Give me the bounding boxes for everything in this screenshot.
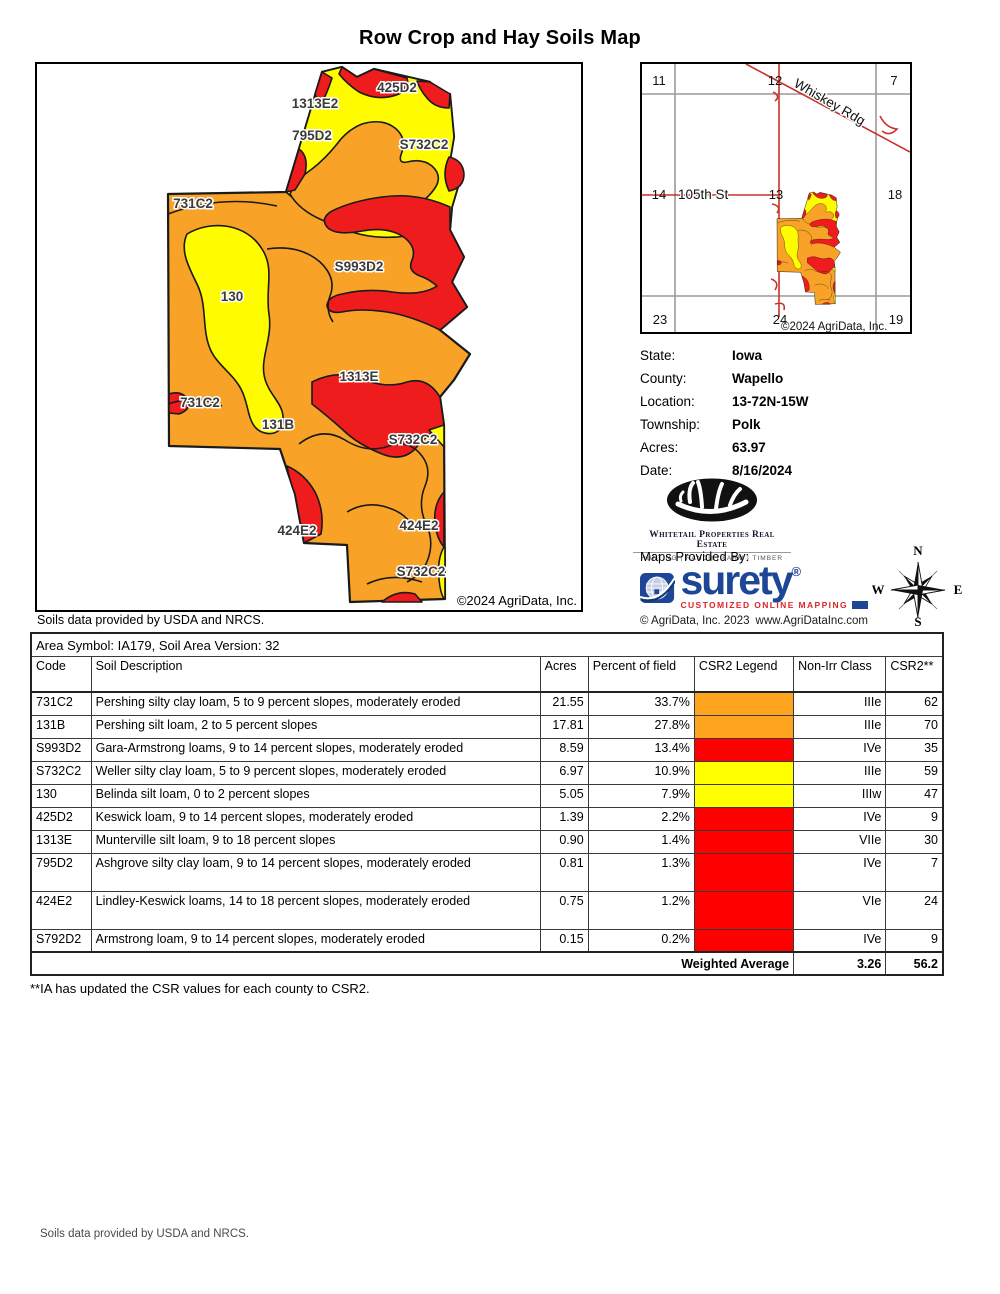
info-label: Acres: — [640, 440, 732, 455]
info-row: Location:13-72N-15W — [640, 390, 809, 413]
cell-description: Lindley-Keswick loams, 14 to 18 percent … — [91, 891, 540, 929]
section-number: 7 — [890, 73, 897, 88]
info-row: State:Iowa — [640, 344, 809, 367]
weighted-average-class-value: 3.26 — [794, 952, 886, 975]
info-label: County: — [640, 371, 732, 386]
cell-acres: 6.97 — [540, 761, 588, 784]
cell-code: S993D2 — [31, 738, 91, 761]
surety-bar-decoration — [852, 601, 868, 609]
cell-percent: 2.2% — [588, 807, 694, 830]
soil-code-label: S732C2 — [397, 564, 446, 579]
info-label: State: — [640, 348, 732, 363]
mini-field-shape — [777, 192, 840, 304]
soil-code-label: 424E2 — [277, 523, 316, 538]
col-header-class: Non-Irr Class — [794, 657, 886, 693]
soils-table: Area Symbol: IA179, Soil Area Version: 3… — [30, 632, 944, 976]
cell-acres: 0.15 — [540, 929, 588, 952]
cell-percent: 0.2% — [588, 929, 694, 952]
cell-non-irr-class: IVe — [794, 929, 886, 952]
cell-description: Weller silty clay loam, 5 to 9 percent s… — [91, 761, 540, 784]
cell-code: 1313E — [31, 830, 91, 853]
cell-non-irr-class: IVe — [794, 853, 886, 891]
cell-acres: 0.75 — [540, 891, 588, 929]
cell-code: 130 — [31, 784, 91, 807]
cell-legend-swatch — [694, 692, 793, 715]
cell-percent: 1.3% — [588, 853, 694, 891]
cell-csr2: 9 — [886, 807, 943, 830]
soil-code-label: 1313E — [339, 369, 378, 384]
cell-legend-swatch — [694, 715, 793, 738]
cell-code: 795D2 — [31, 853, 91, 891]
locator-map: 11127141318232419 105th St Whiskey Rdg ©… — [640, 62, 912, 334]
compass-s: S — [914, 614, 921, 627]
cell-csr2: 35 — [886, 738, 943, 761]
cell-code: 131B — [31, 715, 91, 738]
weighted-average-csr2-value: 56.2 — [886, 952, 943, 975]
cell-non-irr-class: VIIe — [794, 830, 886, 853]
cell-acres: 0.81 — [540, 853, 588, 891]
cell-non-irr-class: IIIe — [794, 692, 886, 715]
surety-globe-icon — [640, 564, 675, 612]
compass-w: W — [872, 582, 885, 597]
cell-acres: 1.39 — [540, 807, 588, 830]
info-value: Iowa — [732, 348, 762, 363]
page-title: Row Crop and Hay Soils Map — [0, 27, 1000, 50]
cell-legend-swatch — [694, 891, 793, 929]
info-label: Township: — [640, 417, 732, 432]
cell-description: Belinda silt loam, 0 to 2 percent slopes — [91, 784, 540, 807]
cell-acres: 17.81 — [540, 715, 588, 738]
section-number: 23 — [653, 312, 667, 327]
soil-code-label: 424E2 — [399, 518, 438, 533]
soil-code-label: 1313E2 — [292, 96, 339, 111]
whitetail-antler-icon — [664, 477, 760, 523]
cell-percent: 13.4% — [588, 738, 694, 761]
surety-tagline: CUSTOMIZED ONLINE MAPPING — [680, 600, 848, 610]
whitetail-name: Whitetail Properties Real Estate — [633, 530, 791, 550]
table-row: S993D2Gara-Armstrong loams, 9 to 14 perc… — [31, 738, 943, 761]
cell-legend-swatch — [694, 853, 793, 891]
table-row: 731C2Pershing silty clay loam, 5 to 9 pe… — [31, 692, 943, 715]
info-value: 13-72N-15W — [732, 394, 809, 409]
parcel-info: State:IowaCounty:WapelloLocation:13-72N-… — [640, 344, 809, 482]
cell-acres: 8.59 — [540, 738, 588, 761]
info-label: Location: — [640, 394, 732, 409]
cell-description: Gara-Armstrong loams, 9 to 14 percent sl… — [91, 738, 540, 761]
csr2-footnote: **IA has updated the CSR values for each… — [30, 981, 370, 996]
soil-code-label: S993D2 — [335, 259, 384, 274]
col-header-csr2: CSR2** — [886, 657, 943, 693]
col-header-code: Code — [31, 657, 91, 693]
cell-csr2: 30 — [886, 830, 943, 853]
cell-non-irr-class: IVe — [794, 738, 886, 761]
section-number: 11 — [652, 73, 666, 88]
compass-rose: N E S W — [872, 543, 964, 632]
cell-description: Munterville silt loam, 9 to 18 percent s… — [91, 830, 540, 853]
cell-code: 731C2 — [31, 692, 91, 715]
cell-description: Ashgrove silty clay loam, 9 to 14 percen… — [91, 853, 540, 891]
cell-description: Keswick loam, 9 to 14 percent slopes, mo… — [91, 807, 540, 830]
cell-legend-swatch — [694, 784, 793, 807]
table-row: 795D2Ashgrove silty clay loam, 9 to 14 p… — [31, 853, 943, 891]
cell-non-irr-class: IIIe — [794, 761, 886, 784]
info-label: Date: — [640, 463, 732, 478]
section-number: 19 — [889, 312, 903, 327]
area-symbol-row: Area Symbol: IA179, Soil Area Version: 3… — [31, 633, 943, 657]
info-value: 8/16/2024 — [732, 463, 792, 478]
table-row: S792D2Armstrong loam, 9 to 14 percent sl… — [31, 929, 943, 952]
cell-legend-swatch — [694, 830, 793, 853]
road-label-105th-st: 105th St — [678, 187, 729, 202]
table-row: 425D2Keswick loam, 9 to 14 percent slope… — [31, 807, 943, 830]
soil-code-label: S732C2 — [400, 137, 449, 152]
cell-legend-swatch — [694, 738, 793, 761]
surety-copyright: © AgriData, Inc. 2023 — [640, 615, 749, 627]
cell-percent: 33.7% — [588, 692, 694, 715]
table-header-row: Code Soil Description Acres Percent of f… — [31, 657, 943, 693]
weighted-average-label: Weighted Average — [31, 952, 794, 975]
info-value: 63.97 — [732, 440, 766, 455]
soil-code-label: S732C2 — [389, 432, 438, 447]
soil-code-label: 731C2 — [180, 395, 220, 410]
cell-code: S732C2 — [31, 761, 91, 784]
locator-attribution: ©2024 AgriData, Inc. — [781, 321, 887, 332]
col-header-percent: Percent of field — [588, 657, 694, 693]
cell-percent: 1.4% — [588, 830, 694, 853]
cell-csr2: 47 — [886, 784, 943, 807]
soils-map-svg: 425D21313E2795D2S732C2731C2S993D21301313… — [37, 64, 581, 610]
cell-legend-swatch — [694, 929, 793, 952]
surety-website: www.AgriDataInc.com — [756, 615, 868, 627]
locator-map-svg: 11127141318232419 105th St Whiskey Rdg ©… — [642, 64, 910, 332]
section-number: 14 — [652, 187, 666, 202]
cell-csr2: 9 — [886, 929, 943, 952]
road-label-whiskey-rdg: Whiskey Rdg — [792, 76, 868, 129]
soil-code-label: 425D2 — [377, 80, 417, 95]
compass-e: E — [954, 582, 963, 597]
surety-wordmark: surety — [680, 557, 791, 603]
cell-non-irr-class: VIe — [794, 891, 886, 929]
map-attribution: ©2024 AgriData, Inc. — [454, 593, 577, 608]
col-header-legend: CSR2 Legend — [694, 657, 793, 693]
cell-description: Pershing silty clay loam, 5 to 9 percent… — [91, 692, 540, 715]
soil-code-label: 731C2 — [173, 196, 213, 211]
table-row: 131BPershing silt loam, 2 to 5 percent s… — [31, 715, 943, 738]
cell-percent: 7.9% — [588, 784, 694, 807]
surety-registered-mark: ® — [792, 564, 802, 579]
table-row: S732C2Weller silty clay loam, 5 to 9 per… — [31, 761, 943, 784]
table-row: 424E2Lindley-Keswick loams, 14 to 18 per… — [31, 891, 943, 929]
cell-csr2: 62 — [886, 692, 943, 715]
table-row: 130Belinda silt loam, 0 to 2 percent slo… — [31, 784, 943, 807]
cell-code: S792D2 — [31, 929, 91, 952]
cell-acres: 0.90 — [540, 830, 588, 853]
col-header-acres: Acres — [540, 657, 588, 693]
cell-csr2: 70 — [886, 715, 943, 738]
cell-csr2: 24 — [886, 891, 943, 929]
cell-csr2: 7 — [886, 853, 943, 891]
info-value: Polk — [732, 417, 761, 432]
cell-csr2: 59 — [886, 761, 943, 784]
section-number: 12 — [768, 73, 782, 88]
info-row: Acres:63.97 — [640, 436, 809, 459]
col-header-description: Soil Description — [91, 657, 540, 693]
cell-description: Armstrong loam, 9 to 14 percent slopes, … — [91, 929, 540, 952]
soil-code-label: 795D2 — [292, 128, 332, 143]
cell-legend-swatch — [694, 807, 793, 830]
section-number: 13 — [769, 187, 783, 202]
section-number: 18 — [888, 187, 902, 202]
weighted-average-row: Weighted Average 3.26 56.2 — [31, 952, 943, 975]
soils-data-note: Soils data provided by USDA and NRCS. — [37, 613, 264, 627]
surety-logo-block: surety® CUSTOMIZED ONLINE MAPPING © Agri… — [640, 564, 868, 627]
compass-n: N — [913, 543, 923, 558]
table-row: 1313EMunterville silt loam, 9 to 18 perc… — [31, 830, 943, 853]
area-symbol: Area Symbol: IA179, Soil Area Version: 3… — [31, 633, 943, 657]
info-row: Township:Polk — [640, 413, 809, 436]
cell-legend-swatch — [694, 761, 793, 784]
cell-percent: 1.2% — [588, 891, 694, 929]
cell-acres: 5.05 — [540, 784, 588, 807]
soil-region-red-bump — [445, 157, 464, 191]
info-row: County:Wapello — [640, 367, 809, 390]
cell-non-irr-class: IIIw — [794, 784, 886, 807]
soil-code-label: 130 — [221, 289, 244, 304]
cell-percent: 10.9% — [588, 761, 694, 784]
cell-code: 424E2 — [31, 891, 91, 929]
cell-description: Pershing silt loam, 2 to 5 percent slope… — [91, 715, 540, 738]
soils-data-note-bottom: Soils data provided by USDA and NRCS. — [40, 1228, 249, 1240]
cell-percent: 27.8% — [588, 715, 694, 738]
cell-acres: 21.55 — [540, 692, 588, 715]
cell-non-irr-class: IVe — [794, 807, 886, 830]
info-value: Wapello — [732, 371, 783, 386]
cell-non-irr-class: IIIe — [794, 715, 886, 738]
compass-main-points — [891, 562, 945, 618]
soil-code-label: 131B — [262, 417, 295, 432]
cell-code: 425D2 — [31, 807, 91, 830]
soils-map: 425D21313E2795D2S732C2731C2S993D21301313… — [35, 62, 583, 612]
